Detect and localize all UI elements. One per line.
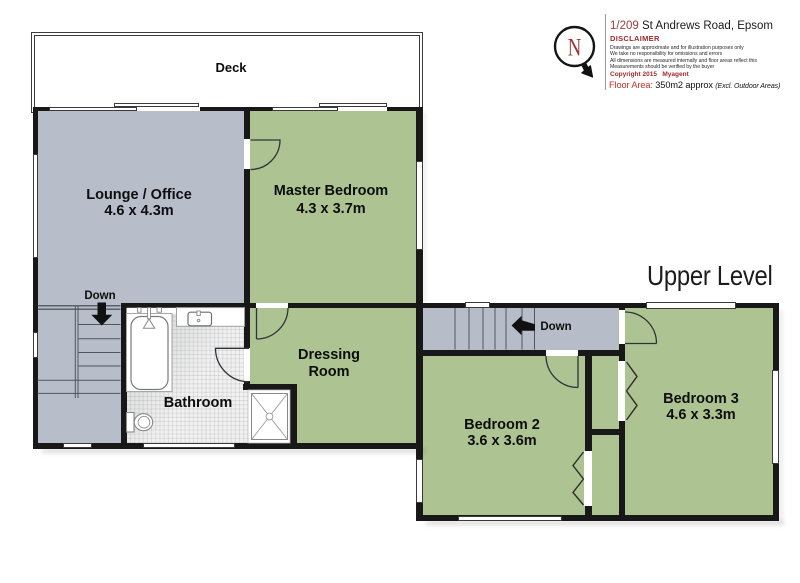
svg-text:N: N [568,34,582,61]
